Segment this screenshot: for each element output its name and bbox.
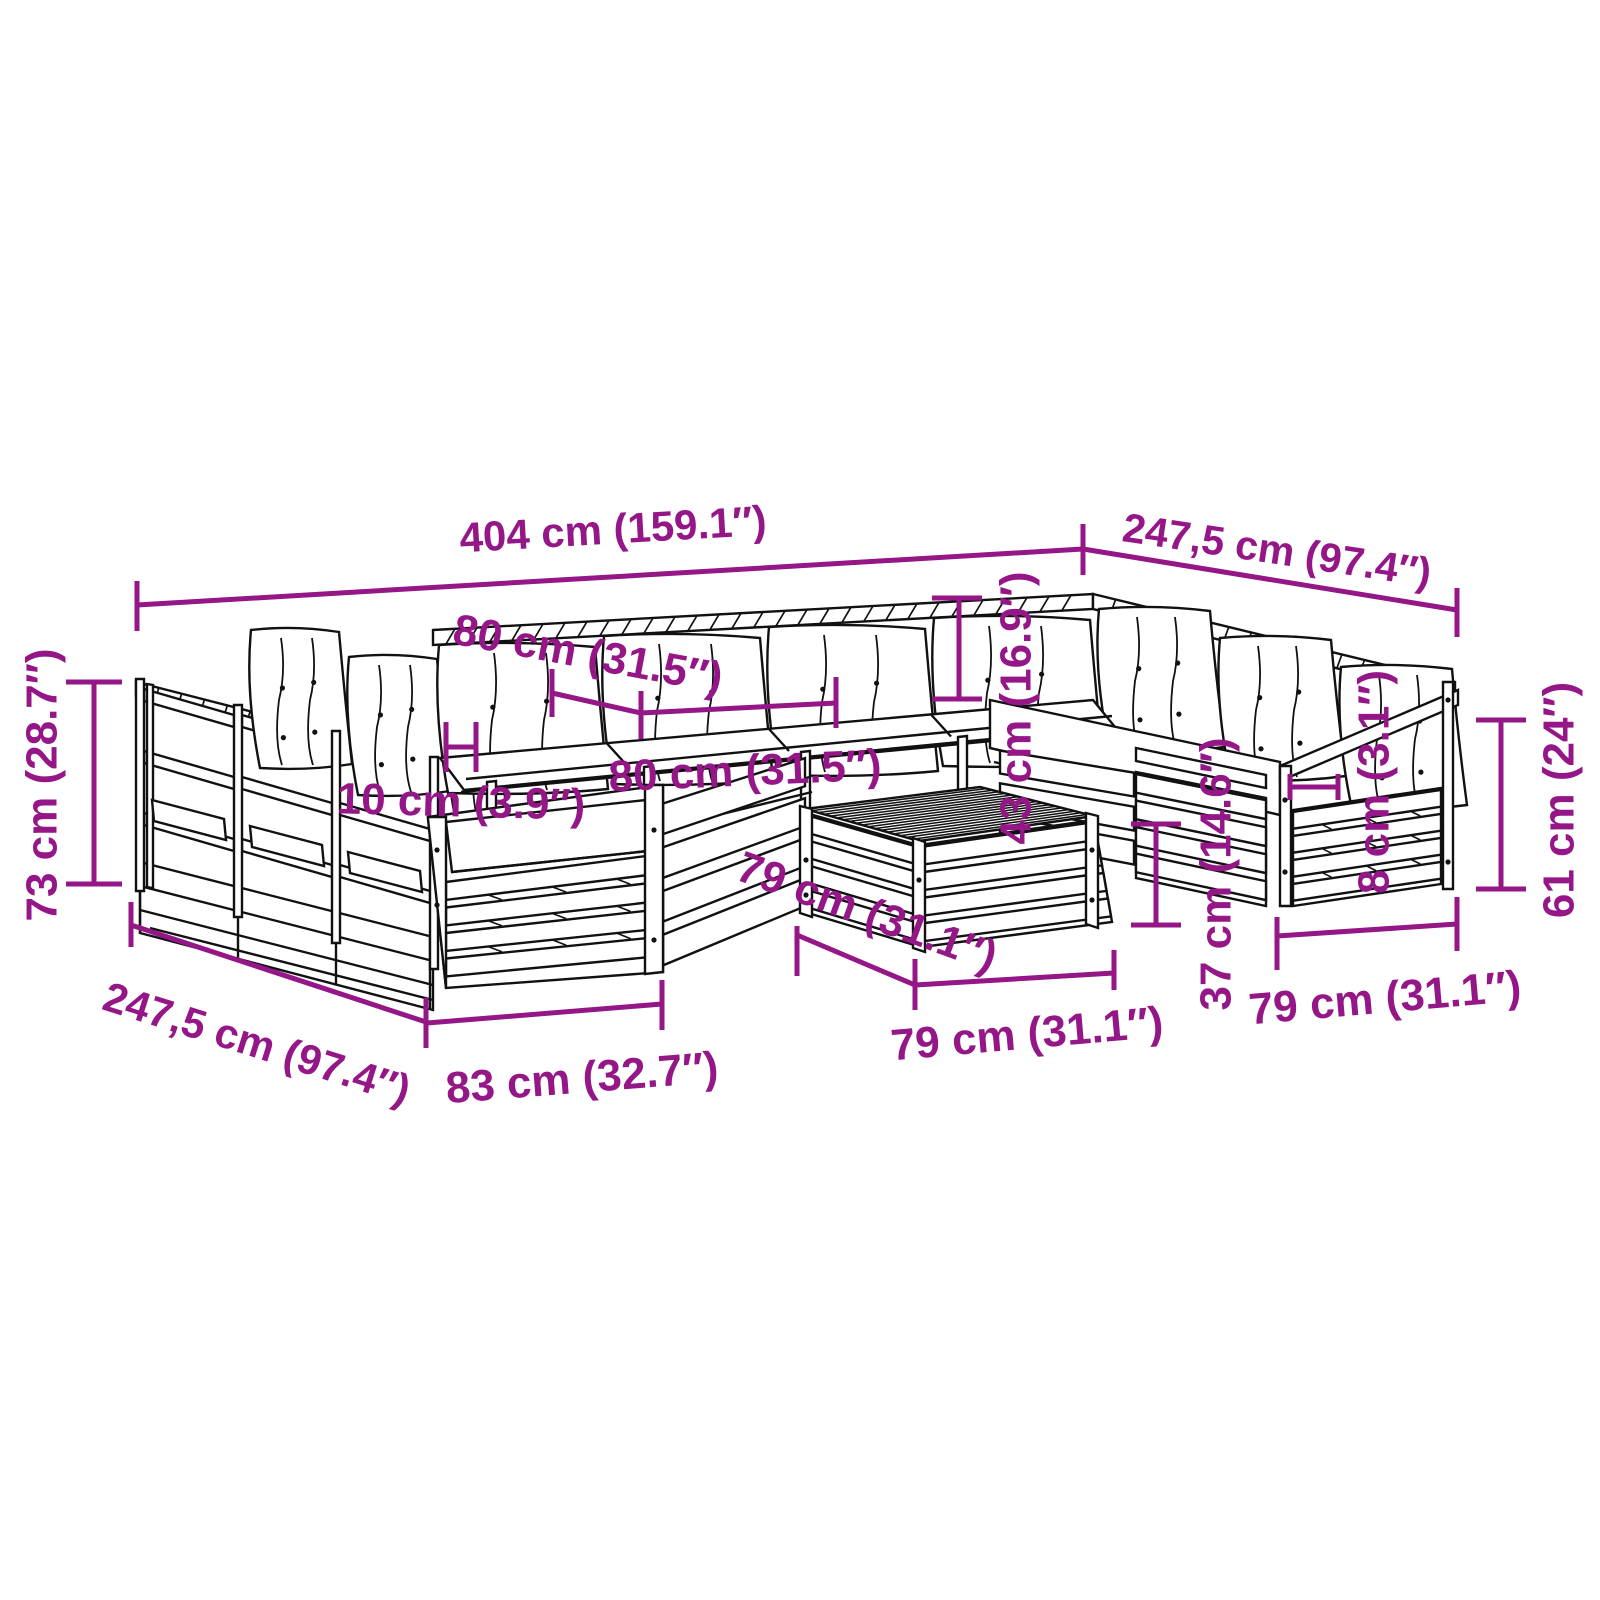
svg-text:43 cm (16.9″): 43 cm (16.9″) [992,571,1041,844]
svg-text:73 cm (28.7″): 73 cm (28.7″) [18,648,67,921]
svg-text:8 cm (3.1″): 8 cm (3.1″) [1350,670,1399,894]
svg-text:61 cm (24″): 61 cm (24″) [1535,682,1584,918]
svg-text:10 cm (3.9″): 10 cm (3.9″) [336,774,586,829]
svg-text:37 cm (14.6″): 37 cm (14.6″) [1192,737,1241,1010]
